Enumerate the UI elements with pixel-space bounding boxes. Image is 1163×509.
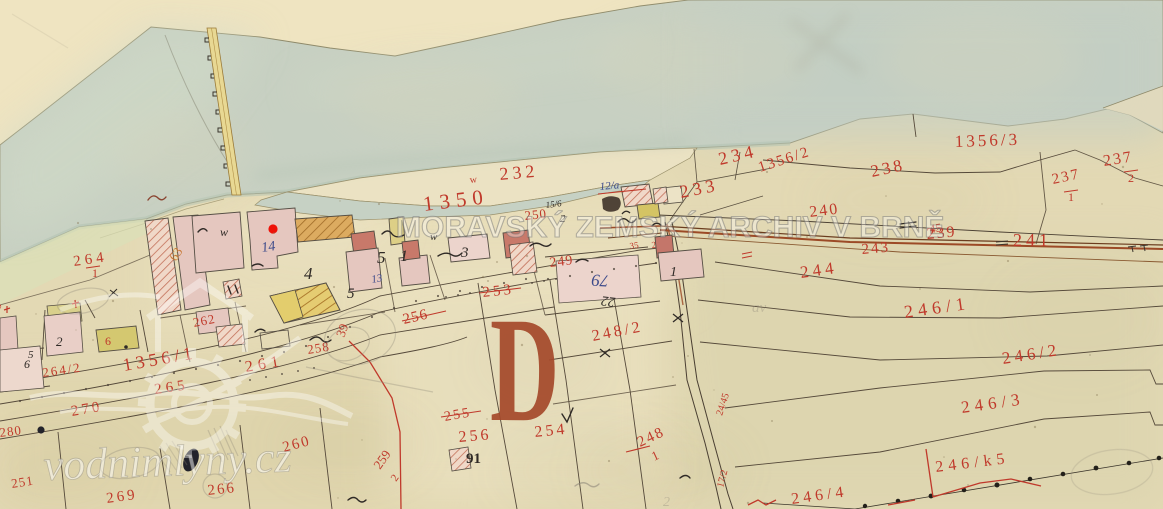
svg-text:91: 91 <box>466 451 481 467</box>
svg-text:241: 241 <box>1013 230 1052 250</box>
svg-text:1356/3: 1356/3 <box>954 130 1020 151</box>
svg-text:5: 5 <box>28 349 34 361</box>
svg-text:254: 254 <box>534 421 569 441</box>
svg-text:1: 1 <box>400 248 408 265</box>
svg-text:232: 232 <box>499 161 540 184</box>
svg-text:vodnimlyny.cz: vodnimlyny.cz <box>43 432 293 490</box>
svg-text:79: 79 <box>591 271 609 291</box>
svg-text:2: 2 <box>56 334 63 349</box>
svg-text:1: 1 <box>92 266 98 280</box>
svg-text:12/a: 12/a <box>599 179 620 193</box>
svg-text:14: 14 <box>260 239 276 256</box>
svg-text:249: 249 <box>549 253 575 271</box>
svg-text:w: w <box>220 225 228 239</box>
svg-text:6: 6 <box>105 334 111 348</box>
svg-text:15/6: 15/6 <box>545 198 563 210</box>
svg-text:256: 256 <box>458 426 492 446</box>
svg-text:5: 5 <box>347 286 355 302</box>
svg-text:253: 253 <box>482 282 515 301</box>
svg-text:280: 280 <box>0 422 23 440</box>
svg-text:1: 1 <box>1068 190 1074 204</box>
svg-text:2: 2 <box>663 495 670 509</box>
svg-text:MORAVSKÝ ZEMSKÝ ARCHIV V BRNĚ: MORAVSKÝ ZEMSKÝ ARCHIV V BRNĚ <box>396 210 944 244</box>
svg-text:5: 5 <box>377 248 386 267</box>
svg-text:4: 4 <box>304 264 313 283</box>
svg-text:1: 1 <box>670 265 677 280</box>
svg-text:22: 22 <box>600 292 616 309</box>
svg-text:2: 2 <box>1128 171 1134 185</box>
svg-text:av: av <box>752 300 767 316</box>
